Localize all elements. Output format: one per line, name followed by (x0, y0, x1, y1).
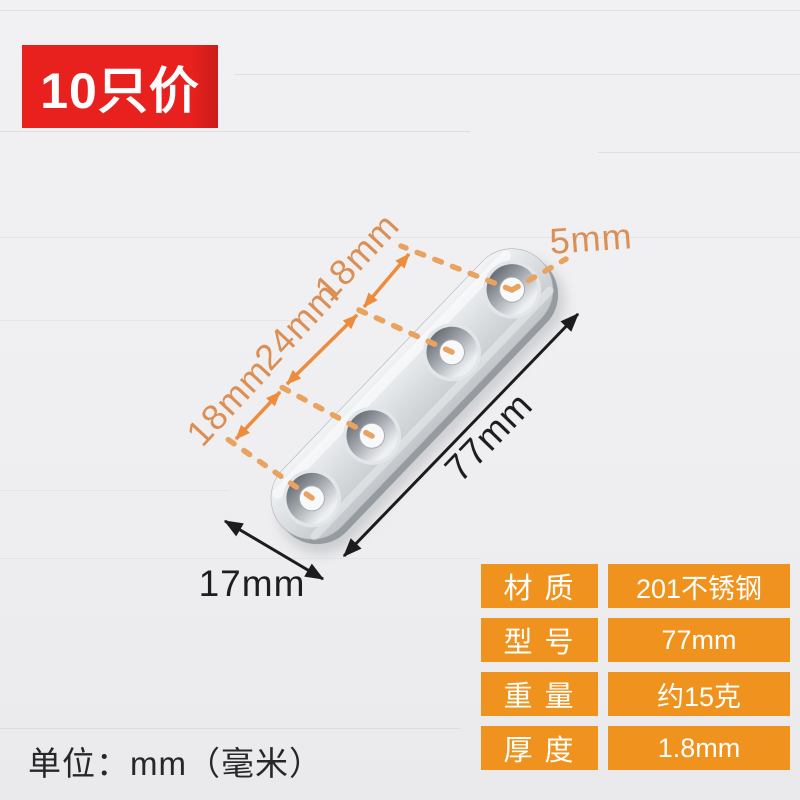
spec-label-cell: 厚 度 (481, 726, 598, 770)
spec-row-weight: 重 量 约15克 (481, 672, 790, 716)
spec-label-cell: 材 质 (481, 564, 598, 608)
spec-label-cell: 重 量 (481, 672, 598, 716)
hole-diameter-label: 5mm (548, 215, 634, 263)
spec-label-cell: 型 号 (481, 618, 598, 662)
spec-value-cell: 77mm (608, 618, 790, 662)
spec-table: 材 质 201不锈钢 型 号 77mm 重 量 约15克 厚 度 1.8mm (481, 564, 790, 780)
spec-row-material: 材 质 201不锈钢 (481, 564, 790, 608)
spec-row-thickness: 厚 度 1.8mm (481, 726, 790, 770)
spec-value-cell: 201不锈钢 (608, 564, 790, 608)
spec-value-cell: 约15克 (608, 672, 790, 716)
plate-width-label: 17mm (199, 563, 306, 605)
price-badge: 10只价 (22, 45, 218, 128)
unit-note: 单位：mm（毫米） (28, 737, 323, 785)
product-image: 18mm 24mm 18mm 5mm 77mm 17mm 10只价 单位：mm（… (0, 0, 800, 800)
price-badge-label: 10只价 (40, 51, 200, 123)
spec-value-cell: 1.8mm (608, 726, 790, 770)
steel-plate (251, 231, 583, 571)
spec-row-model: 型 号 77mm (481, 618, 790, 662)
